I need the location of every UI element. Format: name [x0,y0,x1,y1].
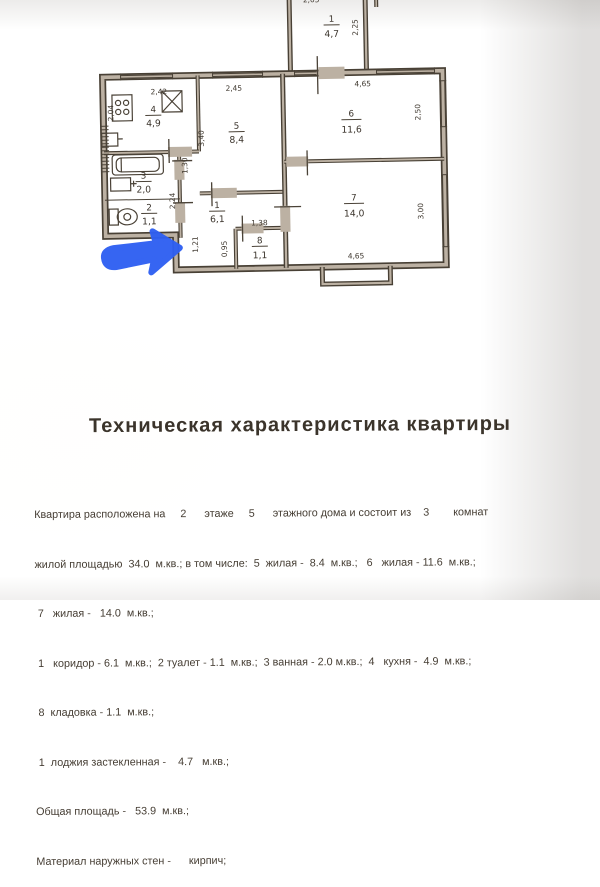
dim-label: 4,65 [354,79,371,88]
doc-line: 1 лоджия застекленная - 4.7 м.кв.; [36,751,596,771]
toilet-icon [109,209,137,226]
room-label-room5: 5 8,4 [228,122,244,146]
dim-label: 1,30 [180,157,189,174]
doc-line: Квартира расположена на 2 этаже 5 этажно… [34,504,594,524]
dim-label: 2,05 [303,0,320,4]
doc-line: Материал наружных стен - кирпич; [36,850,596,870]
dim-label: 1,21 [191,236,200,253]
room-number: 4 [150,105,156,115]
room-number: 3 [141,171,147,181]
room-label-kitchen: 4 4,9 [145,105,161,129]
room-area: 4,7 [324,29,339,40]
document-title: Техническая характеристика квартиры [0,412,600,438]
doc-line: 7 жилая - 14.0 м.кв.; [35,603,595,623]
dim-label: 0,95 [220,240,229,257]
document-body: Квартира расположена на 2 этаже 5 этажно… [34,471,597,887]
room-area: 6,1 [210,214,225,225]
doc-line: Общая площадь - 53.9 м.кв.; [36,801,596,821]
room-area: 11,6 [341,124,362,135]
dim-label: 2,24 [168,192,177,209]
doc-line: 1 коридор - 6.1 м.кв.; 2 туалет - 1.1 м.… [35,652,595,672]
room-label-storage: 8 1,1 [252,236,268,261]
dim-label: 1,38 [251,218,268,227]
doc-line: жилой площадью 34.0 м.кв.; в том числе: … [35,553,595,573]
room-area: 4,9 [146,118,161,129]
room-label-room6: 6 11,6 [341,109,362,135]
floor-plan-svg: 4 4,9 5 8,4 6 11,6 7 14,0 1 6,1 3 2,0 [85,0,463,304]
dim-label: 2,50 [413,104,422,121]
room-number: 1 [329,15,335,25]
scanned-page: { "document": { "title": "Техническая ха… [0,0,600,600]
washbasin-icon [111,178,137,191]
room-number: 5 [234,122,240,132]
dim-label: 3,40 [197,130,206,147]
room-area: 1,1 [253,250,268,261]
dim-label: 2,04 [106,105,115,122]
room-area: 1,1 [142,216,157,227]
dim-label: 2,42 [151,87,168,96]
dim-label: 4,65 [348,251,365,260]
dim-label: 2,45 [225,84,242,93]
room-number: 1 [214,201,220,211]
doc-line: 8 кладовка - 1.1 м.кв.; [35,702,595,722]
room-number: 6 [348,109,354,119]
room-area: 14,0 [344,208,365,219]
bathtub-icon [112,154,163,175]
dim-label: 3,00 [416,203,425,220]
room-label-room7: 7 14,0 [344,193,365,219]
room-area: 8,4 [229,135,244,146]
room-area: 2,0 [136,184,151,195]
room-number: 2 [146,203,152,213]
room-label-toilet: 2 1,1 [141,203,157,227]
room-number: 7 [351,193,357,203]
room-number: 8 [257,236,263,246]
floor-plan: 4 4,9 5 8,4 6 11,6 7 14,0 1 6,1 3 2,0 [85,0,463,304]
room-label-loggia: 1 4,7 [323,15,339,40]
dim-label: 2,25 [350,19,359,36]
